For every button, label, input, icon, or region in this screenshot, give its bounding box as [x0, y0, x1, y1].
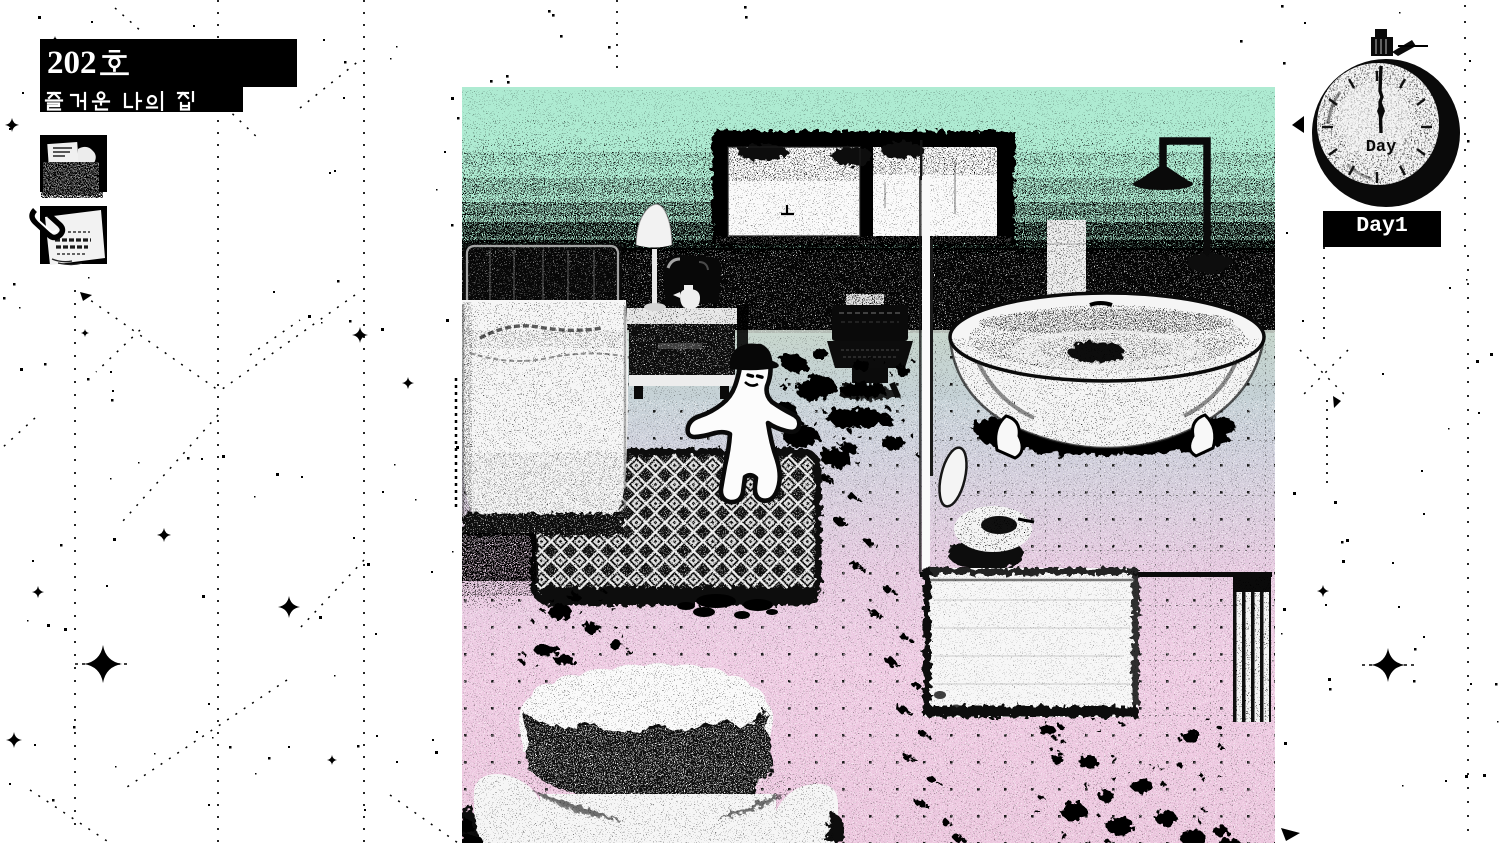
svg-text:Day: Day	[1366, 138, 1397, 157]
